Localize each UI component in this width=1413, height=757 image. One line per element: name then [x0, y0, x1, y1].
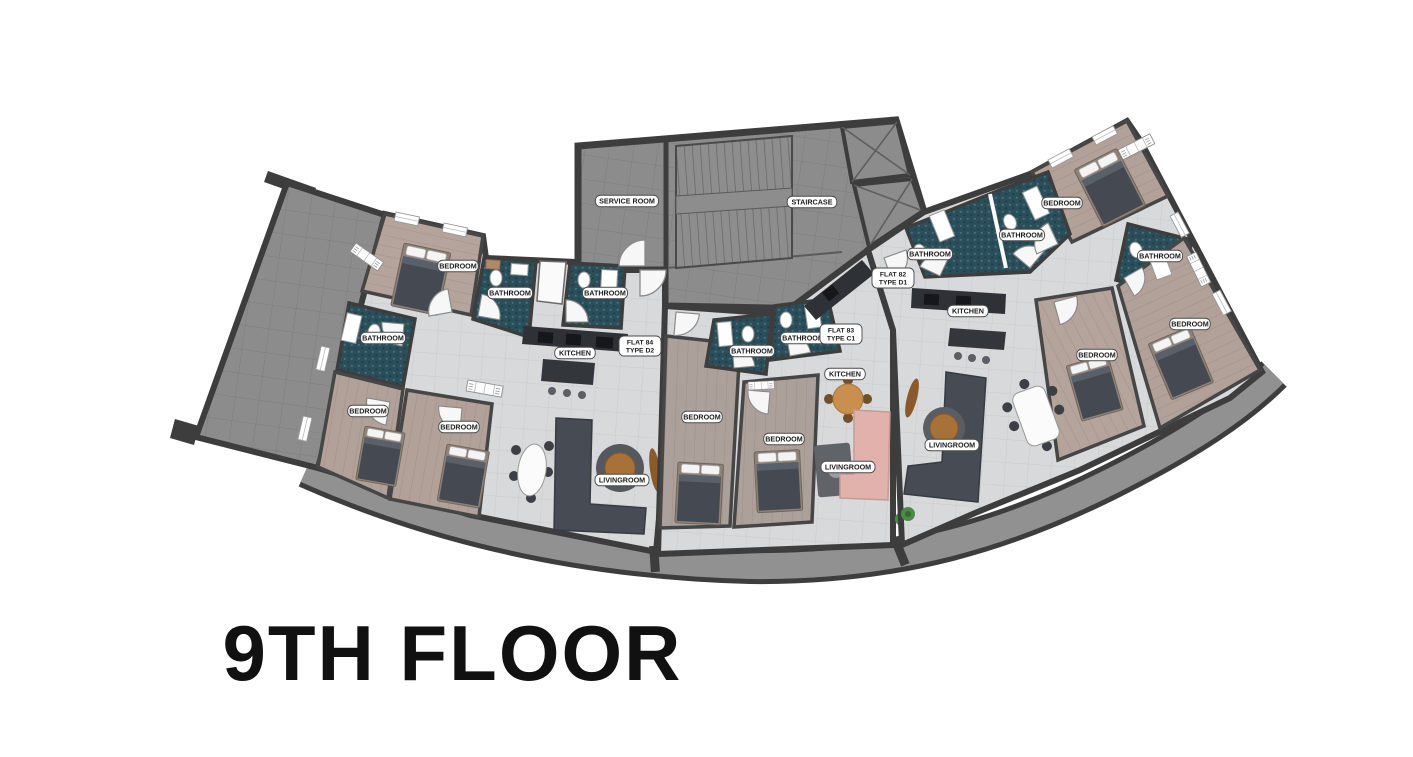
- svg-text:BEDROOM: BEDROOM: [1078, 351, 1116, 360]
- floor-plan-page: SERVICE ROOMSTAIRCASEBEDROOMBATHROOMBATH…: [0, 0, 1413, 757]
- flat-label-flat-82: FLAT 82TYPE D1: [872, 268, 914, 288]
- wardrobe: [748, 381, 774, 390]
- room-label-bedroom: BEDROOM: [438, 260, 479, 272]
- room-label-bathroom: BATHROOM: [488, 287, 533, 299]
- svg-text:TYPE D1: TYPE D1: [879, 280, 908, 287]
- room-label-livingroom: LIVINGROOM: [925, 439, 979, 451]
- room-label-kitchen: KITCHEN: [555, 347, 596, 359]
- svg-text:KITCHEN: KITCHEN: [559, 349, 591, 358]
- svg-text:SERVICE ROOM: SERVICE ROOM: [599, 197, 655, 206]
- room-label-bathroom: BATHROOM: [361, 332, 406, 344]
- plant: [901, 507, 915, 521]
- svg-text:FLAT 84: FLAT 84: [627, 340, 654, 347]
- svg-text:FLAT 82: FLAT 82: [880, 272, 907, 279]
- svg-text:TYPE C1: TYPE C1: [827, 336, 856, 343]
- svg-text:BATHROOM: BATHROOM: [731, 347, 773, 356]
- svg-text:LIVINGROOM: LIVINGROOM: [929, 441, 975, 450]
- room-label-bedroom: BEDROOM: [1042, 197, 1083, 209]
- room-label-bedroom: BEDROOM: [682, 411, 723, 423]
- room-label-bedroom: BEDROOM: [764, 433, 805, 445]
- svg-text:BATHROOM: BATHROOM: [909, 250, 951, 259]
- svg-text:BATHROOM: BATHROOM: [362, 334, 404, 343]
- kitchen-island: [541, 359, 595, 385]
- svg-text:KITCHEN: KITCHEN: [952, 307, 984, 316]
- coffee-table: [930, 414, 958, 442]
- floor-title: 9TH FLOOR: [0, 608, 905, 699]
- svg-text:BEDROOM: BEDROOM: [349, 407, 387, 416]
- svg-text:BEDROOM: BEDROOM: [1043, 199, 1081, 208]
- svg-text:LIVINGROOM: LIVINGROOM: [599, 476, 645, 485]
- svg-text:FLAT 83: FLAT 83: [828, 328, 855, 335]
- room-label-bedroom: BEDROOM: [1077, 349, 1118, 361]
- room-label-service-room: SERVICE ROOM: [596, 195, 659, 207]
- bed: [754, 450, 803, 513]
- bed: [675, 462, 724, 525]
- room-label-livingroom: LIVINGROOM: [821, 461, 875, 473]
- room-label-bedroom: BEDROOM: [439, 421, 480, 433]
- svg-text:BATHROOM: BATHROOM: [1001, 231, 1043, 240]
- flat-label-flat-83: FLAT 83TYPE C1: [820, 324, 862, 344]
- flat-label-flat-84: FLAT 84TYPE D2: [619, 336, 661, 356]
- svg-text:BEDROOM: BEDROOM: [439, 262, 477, 271]
- room-label-bathroom: BATHROOM: [1000, 229, 1045, 241]
- svg-text:BATHROOM: BATHROOM: [584, 289, 626, 298]
- svg-text:LIVINGROOM: LIVINGROOM: [825, 463, 871, 472]
- svg-text:STAIRCASE: STAIRCASE: [792, 198, 833, 207]
- flat-82-unit: [868, 121, 1262, 545]
- svg-text:BEDROOM: BEDROOM: [1171, 320, 1209, 329]
- room-label-livingroom: LIVINGROOM: [595, 474, 649, 486]
- room-label-bathroom: BATHROOM: [781, 332, 826, 344]
- svg-text:BEDROOM: BEDROOM: [683, 413, 721, 422]
- closet: [537, 261, 566, 304]
- svg-text:BEDROOM: BEDROOM: [440, 423, 478, 432]
- room-label-bathroom: BATHROOM: [908, 248, 953, 260]
- svg-text:BATHROOM: BATHROOM: [1139, 252, 1181, 261]
- svg-text:TYPE D2: TYPE D2: [626, 348, 655, 355]
- svg-text:BATHROOM: BATHROOM: [489, 289, 531, 298]
- room-label-bathroom: BATHROOM: [583, 287, 628, 299]
- svg-text:BATHROOM: BATHROOM: [782, 334, 824, 343]
- room-label-staircase: STAIRCASE: [787, 196, 837, 208]
- bed: [437, 444, 490, 508]
- room-label-bathroom: BATHROOM: [730, 345, 775, 357]
- room-label-bedroom: BEDROOM: [1170, 318, 1211, 330]
- room-label-bedroom: BEDROOM: [348, 405, 389, 417]
- room-label-bathroom: BATHROOM: [1138, 250, 1183, 262]
- bed: [356, 426, 406, 487]
- room-label-kitchen: KITCHEN: [948, 305, 989, 317]
- room-label-kitchen: KITCHEN: [825, 368, 866, 380]
- svg-text:KITCHEN: KITCHEN: [829, 370, 861, 379]
- svg-text:BEDROOM: BEDROOM: [765, 435, 803, 444]
